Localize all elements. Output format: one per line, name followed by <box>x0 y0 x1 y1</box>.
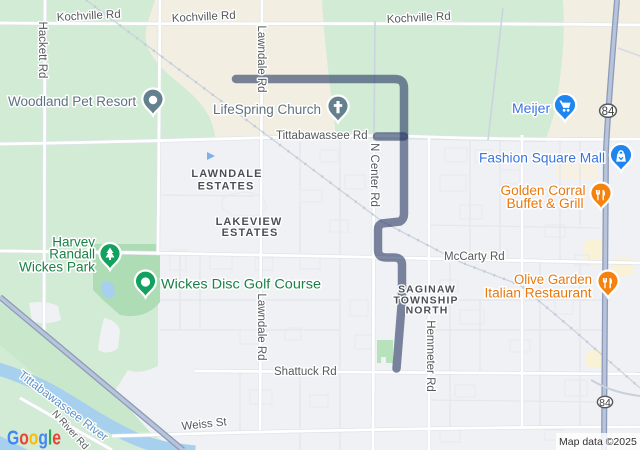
svg-text:Wickes Park: Wickes Park <box>19 260 95 275</box>
svg-text:LAWNDALE: LAWNDALE <box>191 168 262 180</box>
svg-text:Lawndale Rd: Lawndale Rd <box>255 293 267 360</box>
svg-text:Tittabawassee Rd: Tittabawassee Rd <box>276 130 368 142</box>
svg-text:Wickes Disc Golf Course: Wickes Disc Golf Course <box>161 276 321 292</box>
svg-text:Meijer: Meijer <box>512 100 550 116</box>
svg-text:McCarty Rd: McCarty Rd <box>444 251 505 263</box>
svg-text:Woodland Pet Resort: Woodland Pet Resort <box>8 94 136 109</box>
svg-text:Map data ©2025: Map data ©2025 <box>559 436 637 448</box>
svg-text:N Center Rd: N Center Rd <box>368 143 380 207</box>
svg-text:Hemmeter Rd: Hemmeter Rd <box>424 320 436 392</box>
svg-text:84: 84 <box>599 397 611 409</box>
svg-text:Lawndale Rd: Lawndale Rd <box>255 25 267 92</box>
svg-text:Shattuck Rd: Shattuck Rd <box>274 366 337 378</box>
svg-text:Buffet & Grill: Buffet & Grill <box>507 196 584 211</box>
svg-text:84: 84 <box>602 106 615 118</box>
svg-text:Google: Google <box>7 428 61 450</box>
svg-text:NORTH: NORTH <box>406 305 449 317</box>
svg-text:ESTATES: ESTATES <box>222 227 279 239</box>
svg-text:LifeSpring Church: LifeSpring Church <box>213 102 321 117</box>
svg-text:ESTATES: ESTATES <box>198 181 255 193</box>
svg-text:Italian Restaurant: Italian Restaurant <box>485 286 592 301</box>
svg-text:Hackett Rd: Hackett Rd <box>36 22 48 79</box>
svg-text:Fashion Square Mall: Fashion Square Mall <box>479 150 605 166</box>
